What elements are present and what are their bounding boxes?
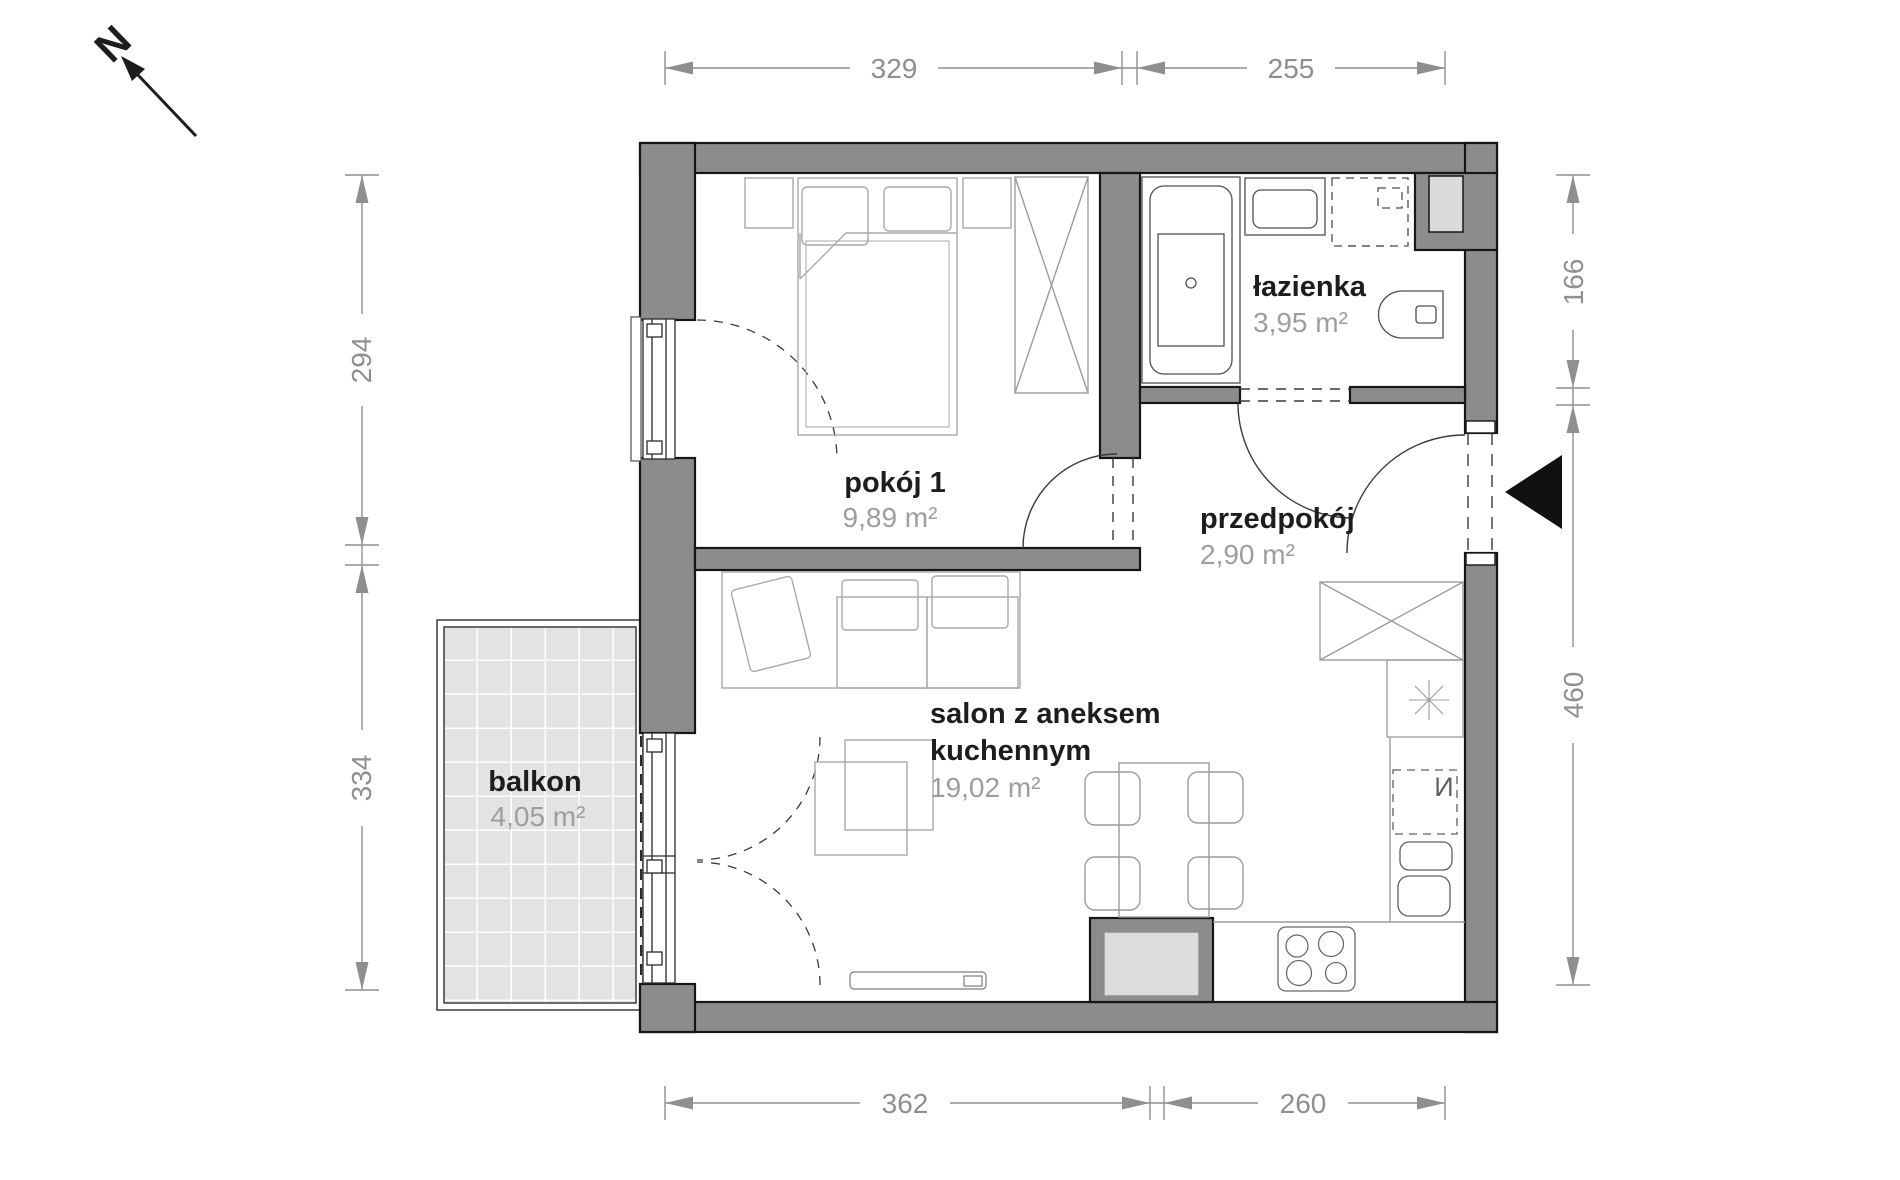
stove — [1278, 927, 1355, 991]
wardrobe — [1015, 177, 1088, 393]
dining-chair — [1085, 857, 1140, 910]
dim-top-1: 329 — [871, 53, 918, 84]
room-area-pokoj: 9,89 m² — [843, 502, 938, 533]
room-area-przedpokoj: 2,90 m² — [1200, 539, 1295, 570]
dim-right-2: 460 — [1558, 672, 1589, 719]
wall-top — [640, 143, 1497, 173]
room-name-lazienka: łazienka — [1253, 271, 1367, 303]
fridge-star — [1387, 660, 1463, 737]
sofa — [722, 572, 1020, 688]
wall-bathroom-south-west — [1140, 387, 1240, 403]
wall-bedroom-salon — [695, 548, 1140, 570]
dim-top-2: 255 — [1268, 53, 1315, 84]
bathtub — [1142, 177, 1240, 383]
dining-chair — [1085, 772, 1140, 825]
kitchen-counter — [1213, 737, 1465, 922]
room-area-salon: 19,02 m² — [930, 772, 1041, 803]
wall-bedroom-bathroom — [1100, 173, 1140, 458]
toilet — [1379, 291, 1444, 338]
dim-bottom-1: 362 — [882, 1088, 929, 1119]
entrance-marker-icon — [1505, 455, 1562, 529]
nightstand-right — [963, 178, 1011, 228]
nightstand-left — [745, 178, 793, 228]
bedroom-window-swing-arc — [697, 320, 837, 460]
room-name-pokoj: pokój 1 — [844, 467, 946, 499]
dining-chairs — [1085, 772, 1243, 910]
wall-bathroom-south-east — [1350, 387, 1465, 403]
coffee-table — [815, 740, 933, 855]
dim-left-2: 334 — [346, 755, 377, 802]
kitchen-sink — [1398, 842, 1452, 916]
walls — [640, 143, 1497, 1032]
wall-left-upper — [640, 143, 695, 320]
room-area-balkon: 4,05 m² — [491, 801, 586, 832]
radiator — [850, 972, 986, 989]
room-name-przedpokoj: przedpokój — [1200, 503, 1355, 535]
balcony-door — [643, 733, 675, 983]
dim-right-1: 166 — [1558, 259, 1589, 306]
dishwasher-symbol: И — [1434, 772, 1453, 802]
wall-right-lower — [1465, 553, 1497, 1032]
dining-chair — [1188, 772, 1243, 823]
dim-bottom-2: 260 — [1280, 1088, 1327, 1119]
room-name-balkon: balkon — [488, 766, 581, 798]
wall-bottom — [640, 1002, 1497, 1032]
floor-plan-canvas: N 329 255 362 260 294 — [0, 0, 1900, 1180]
room-name-salon-2: kuchennym — [930, 735, 1091, 767]
entrance-door — [1347, 421, 1495, 565]
room-name-salon-1: salon z aneksem — [930, 698, 1161, 730]
shaft — [1429, 176, 1463, 232]
dishwasher: И — [1393, 770, 1457, 834]
dining-chair — [1188, 857, 1243, 909]
washbasin — [1245, 178, 1325, 235]
wall-left-middle — [640, 458, 695, 733]
dim-left-1: 294 — [346, 337, 377, 384]
washing-machine — [1332, 178, 1408, 246]
room-area-lazienka: 3,95 m² — [1253, 307, 1348, 338]
dining-table — [1119, 763, 1209, 917]
bedroom-door — [1023, 454, 1133, 548]
bedroom-window — [631, 317, 675, 461]
wall-left-lower — [640, 984, 695, 1032]
north-arrow-icon: N — [85, 16, 196, 136]
pier-inner — [1104, 932, 1199, 996]
floor-plan-page: N 329 255 362 260 294 — [0, 0, 1900, 1180]
bathroom-door — [1238, 389, 1353, 518]
balcony-door-swing-arcs — [697, 737, 820, 985]
tall-cabinet-x — [1320, 582, 1463, 660]
